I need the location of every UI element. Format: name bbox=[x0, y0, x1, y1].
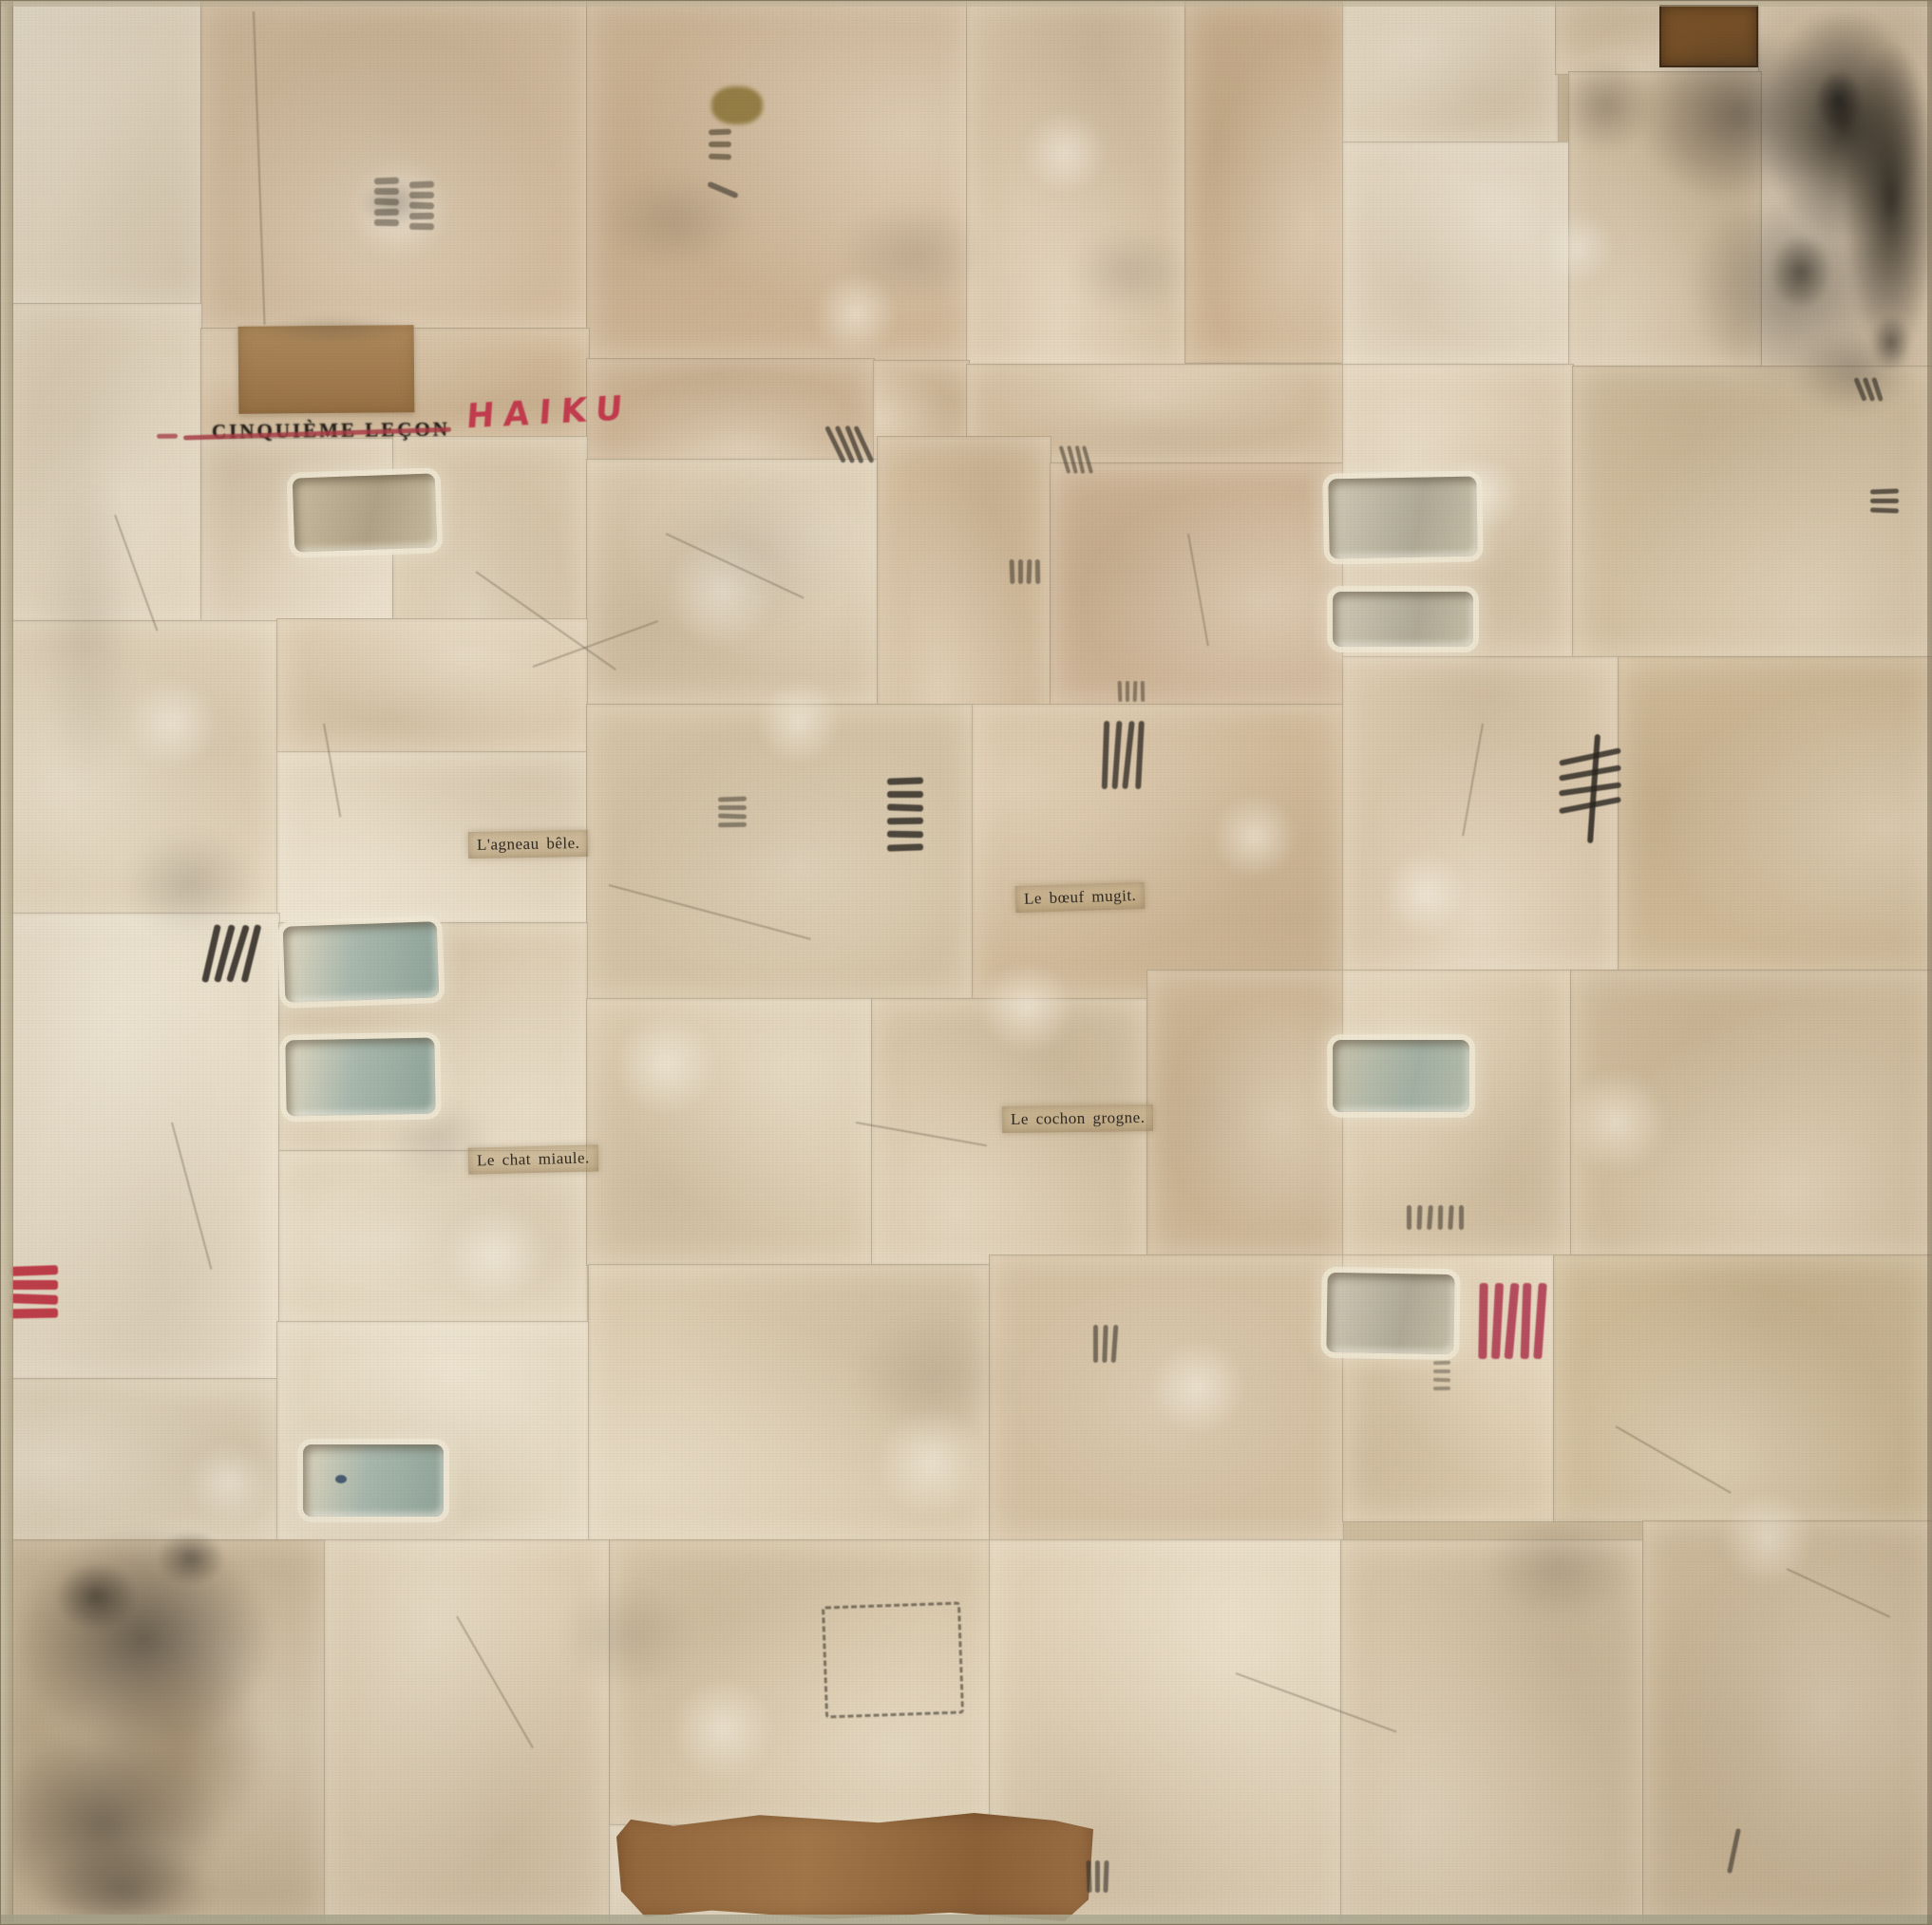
clipping-chat: Le chat miaule. bbox=[468, 1144, 598, 1174]
haiku-handwriting: HAIKU bbox=[465, 389, 634, 436]
lesson-title-fragment: CINQUIÈME LEÇON bbox=[212, 418, 450, 444]
red-strike-dash bbox=[157, 434, 178, 439]
text-fragment-layer: CINQUIÈME LEÇON HAIKU L'agneau bêle. Le … bbox=[1, 1, 1932, 1924]
clipping-agneau: L'agneau bêle. bbox=[468, 830, 589, 859]
canvas-left-edge bbox=[1, 1, 13, 1924]
canvas-right-edge bbox=[1927, 1, 1932, 1924]
canvas-top-edge bbox=[1, 1, 1932, 7]
collage-artwork: CINQUIÈME LEÇON HAIKU L'agneau bêle. Le … bbox=[0, 0, 1932, 1925]
clipping-cochon: Le cochon grogne. bbox=[1002, 1104, 1154, 1133]
clipping-boeuf: Le bœuf mugit. bbox=[1015, 882, 1146, 913]
